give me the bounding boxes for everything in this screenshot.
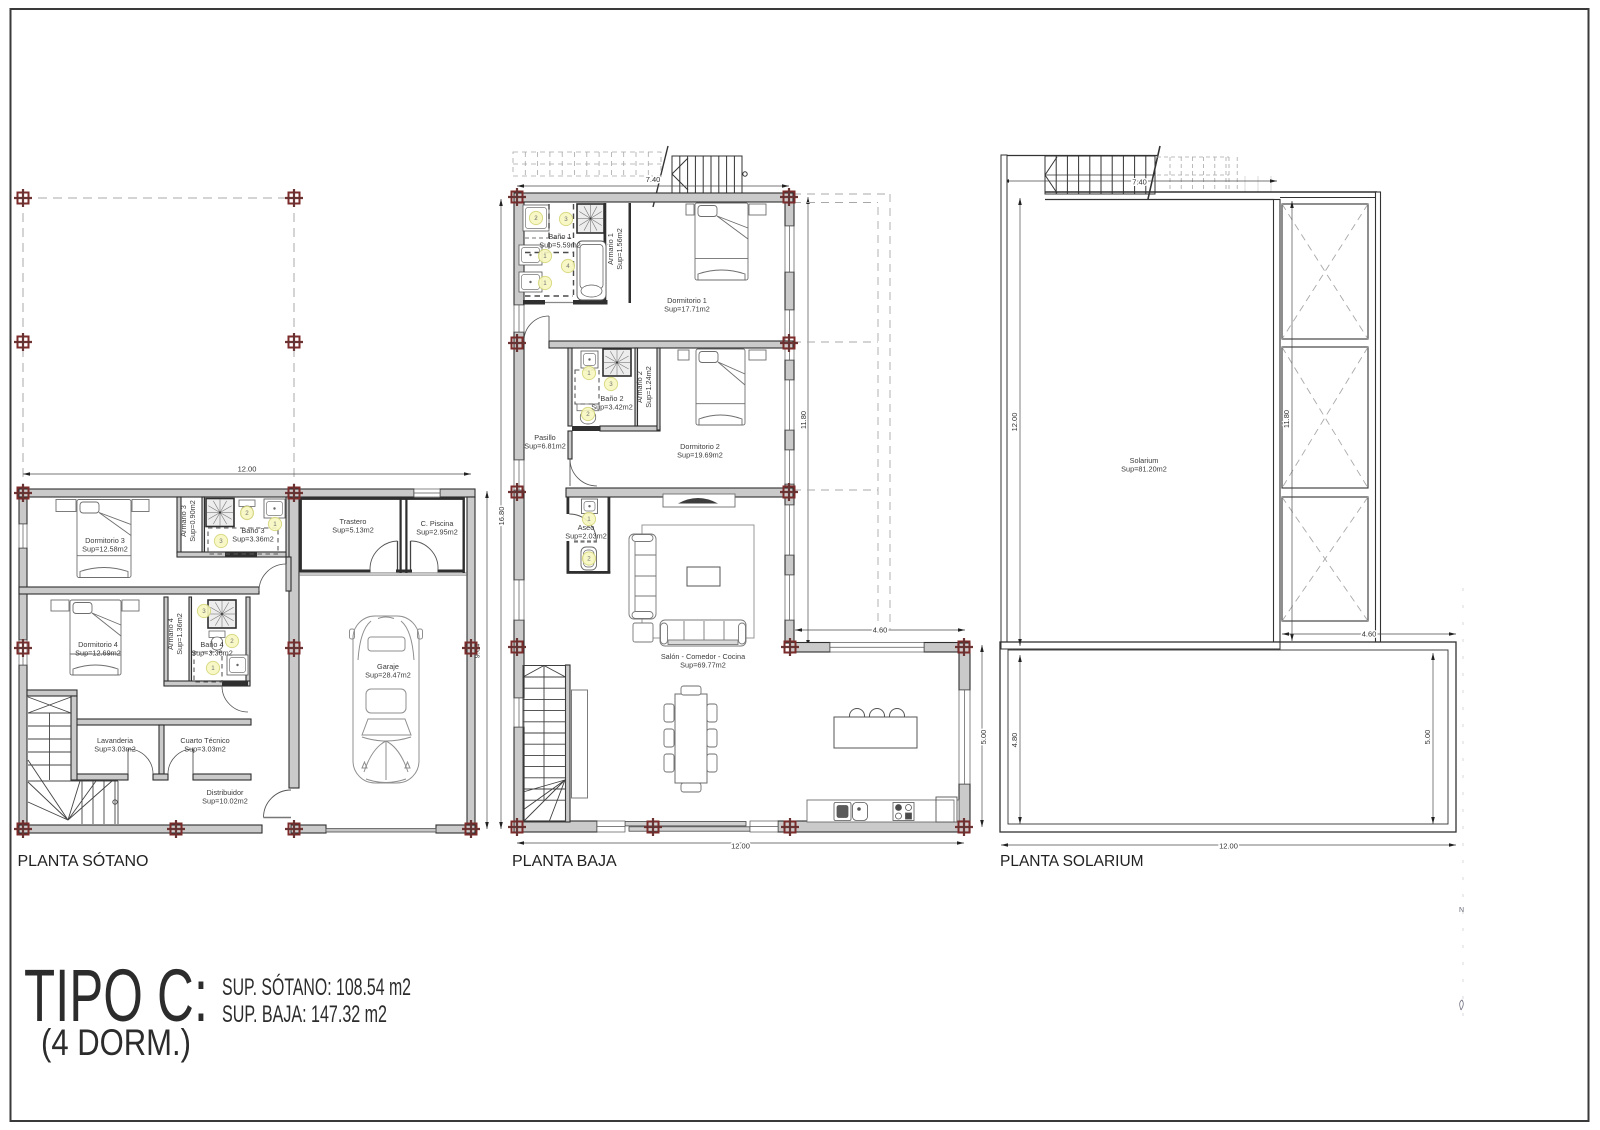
svg-text:SUP. SÓTANO: 108.54 m2: SUP. SÓTANO: 108.54 m2 — [222, 974, 411, 1001]
svg-text:Sup=17.71m2: Sup=17.71m2 — [664, 305, 710, 314]
svg-text:2: 2 — [587, 556, 591, 563]
svg-text:Sup=6.81m2: Sup=6.81m2 — [524, 442, 566, 451]
svg-text:Sup=3.03m2: Sup=3.03m2 — [184, 745, 226, 754]
svg-text:Sup=5.59m2: Sup=5.59m2 — [539, 241, 581, 250]
svg-text:3: 3 — [202, 608, 206, 615]
svg-text:4.60: 4.60 — [1362, 630, 1377, 639]
svg-text:7.40: 7.40 — [646, 175, 661, 184]
svg-text:Sup=0.90m2: Sup=0.90m2 — [188, 500, 197, 542]
svg-text:12.00: 12.00 — [238, 465, 257, 474]
svg-text:1: 1 — [543, 280, 547, 287]
svg-text:3: 3 — [609, 381, 613, 388]
svg-text:2: 2 — [534, 215, 538, 222]
svg-text:1: 1 — [273, 521, 277, 528]
svg-text:1: 1 — [543, 253, 547, 260]
svg-text:4.60: 4.60 — [873, 626, 888, 635]
svg-text:11.80: 11.80 — [799, 411, 808, 429]
svg-text:Sup=12.58m2: Sup=12.58m2 — [82, 545, 128, 554]
svg-text:PLANTA BAJA: PLANTA BAJA — [512, 853, 617, 870]
svg-text:2: 2 — [586, 411, 590, 418]
svg-text:16.80: 16.80 — [497, 507, 506, 526]
svg-text:Sup=5.13m2: Sup=5.13m2 — [332, 526, 374, 535]
svg-text:5.00: 5.00 — [1423, 730, 1432, 745]
svg-text:Sup=2.03m2: Sup=2.03m2 — [565, 532, 607, 541]
svg-text:Sup=2.95m2: Sup=2.95m2 — [416, 528, 458, 537]
svg-text:Sup=1.36m2: Sup=1.36m2 — [175, 613, 184, 655]
svg-text:Sup=10.02m2: Sup=10.02m2 — [202, 797, 248, 806]
svg-text:Sup=3.03m2: Sup=3.03m2 — [94, 745, 136, 754]
svg-text:3: 3 — [564, 216, 568, 223]
svg-text:Sup=81.20m2: Sup=81.20m2 — [1121, 465, 1167, 474]
svg-text:12.00: 12.00 — [731, 842, 750, 851]
svg-text:Sup=19.69m2: Sup=19.69m2 — [677, 451, 723, 460]
svg-text:Sup=3.36m2: Sup=3.36m2 — [191, 649, 233, 658]
svg-text:2: 2 — [230, 638, 234, 645]
svg-text:Sup=12.69m2: Sup=12.69m2 — [75, 649, 121, 658]
svg-text:SUP. BAJA: 147.32 m2: SUP. BAJA: 147.32 m2 — [222, 1001, 387, 1028]
svg-text:Sup=3.36m2: Sup=3.36m2 — [232, 535, 274, 544]
svg-text:Sup=1.24m2: Sup=1.24m2 — [644, 366, 653, 408]
svg-text:Sup=69.77m2: Sup=69.77m2 — [680, 661, 726, 670]
svg-text:1: 1 — [587, 370, 591, 377]
svg-text:2: 2 — [245, 510, 249, 517]
svg-text:Sup=3.42m2: Sup=3.42m2 — [591, 403, 633, 412]
svg-text:11.80: 11.80 — [1282, 410, 1291, 428]
svg-text:3: 3 — [219, 538, 223, 545]
svg-text:4.80: 4.80 — [1010, 733, 1019, 748]
svg-text:Sup=28.47m2: Sup=28.47m2 — [365, 671, 411, 680]
svg-text:PLANTA SOLARIUM: PLANTA SOLARIUM — [1000, 853, 1144, 870]
svg-text:7.40: 7.40 — [1132, 178, 1147, 187]
svg-text:4: 4 — [566, 263, 570, 270]
svg-text:N: N — [1459, 907, 1464, 914]
svg-text:PLANTA SÓTANO: PLANTA SÓTANO — [18, 851, 149, 870]
svg-text:Sup=1.56m2: Sup=1.56m2 — [615, 228, 624, 270]
svg-text:12.00: 12.00 — [1219, 842, 1238, 851]
svg-text:12.00: 12.00 — [1010, 413, 1019, 432]
svg-text:1: 1 — [211, 665, 215, 672]
svg-text:5.00: 5.00 — [979, 730, 988, 745]
svg-text:(4 DORM.): (4 DORM.) — [41, 1022, 191, 1063]
